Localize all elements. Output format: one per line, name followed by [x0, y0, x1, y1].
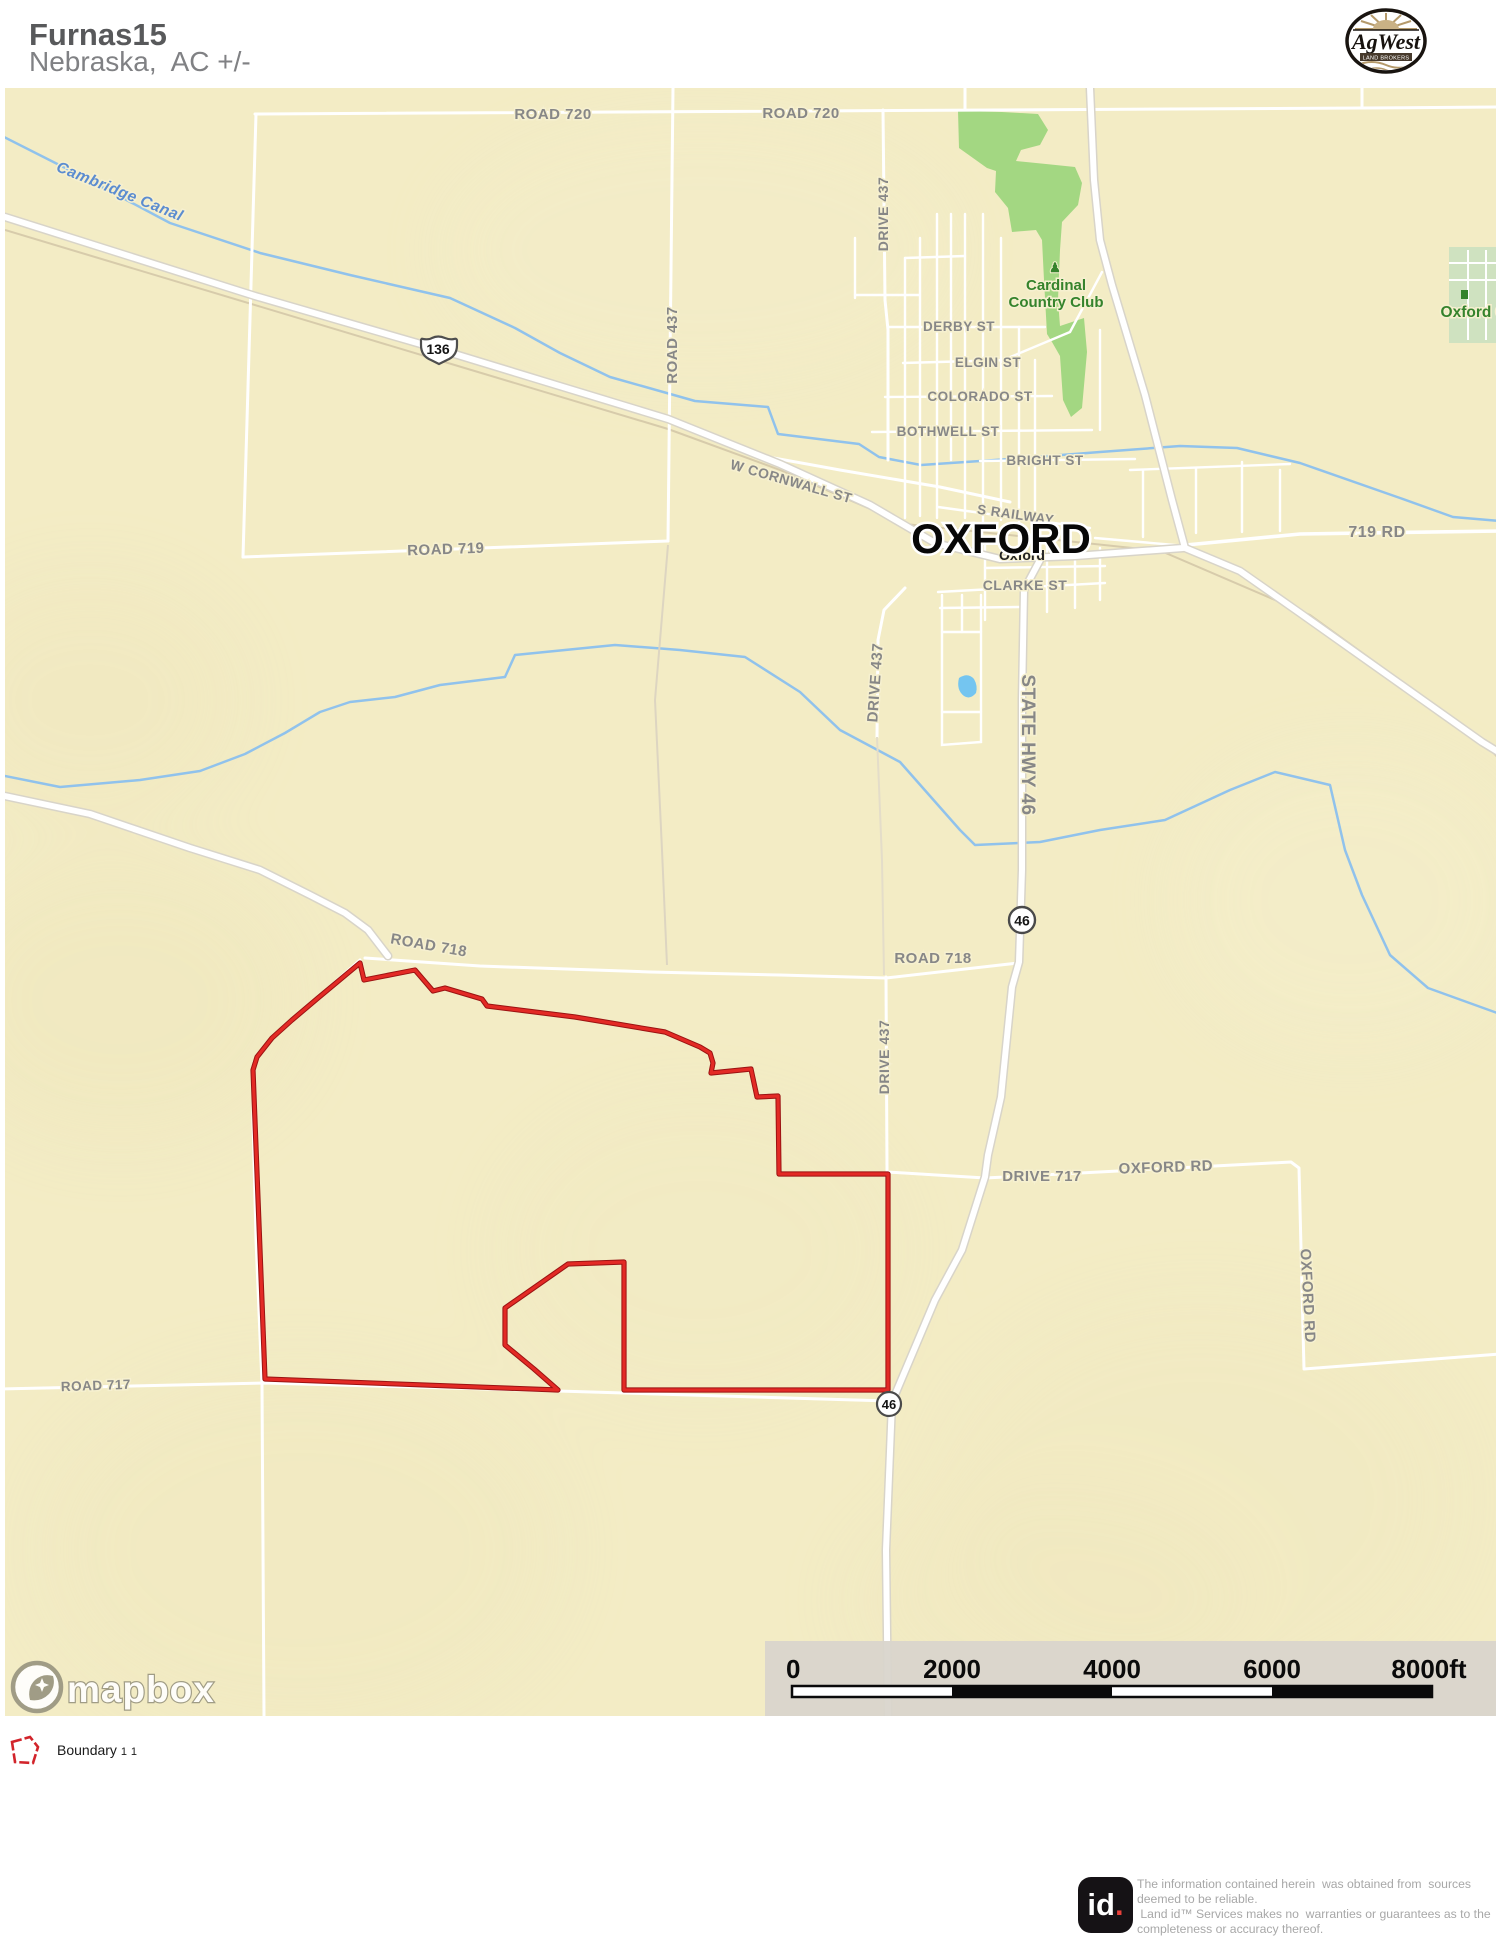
svg-text:DERBY ST: DERBY ST: [923, 319, 995, 334]
svg-text:0: 0: [786, 1654, 800, 1684]
svg-text:ROAD 719: ROAD 719: [407, 540, 485, 560]
svg-text:719 RD: 719 RD: [1348, 524, 1405, 541]
svg-text:OXFORD RD: OXFORD RD: [1118, 1157, 1213, 1177]
svg-text:46: 46: [1014, 913, 1030, 929]
svg-text:Country Club: Country Club: [1009, 294, 1104, 311]
svg-text:BOTHWELL ST: BOTHWELL ST: [897, 424, 1000, 439]
svg-text:2000: 2000: [923, 1654, 981, 1684]
svg-text:ROAD 718: ROAD 718: [894, 950, 971, 967]
svg-text:STATE HWY 46: STATE HWY 46: [1017, 674, 1038, 815]
svg-text:Cardinal: Cardinal: [1026, 277, 1086, 294]
svg-text:8000ft: 8000ft: [1391, 1654, 1466, 1684]
svg-text:DRIVE 437: DRIVE 437: [876, 1020, 892, 1095]
svg-text:ROAD 717: ROAD 717: [61, 1377, 132, 1394]
svg-text:COLORADO ST: COLORADO ST: [927, 389, 1033, 404]
svg-text:136: 136: [426, 341, 450, 357]
svg-text:DRIVE 717: DRIVE 717: [1002, 1168, 1082, 1185]
svg-text:ROAD 720: ROAD 720: [514, 106, 591, 123]
svg-text:ROAD 720: ROAD 720: [762, 105, 839, 122]
svg-text:OXFORD: OXFORD: [911, 515, 1091, 562]
svg-text:Oxford Ce: Oxford Ce: [1441, 304, 1500, 321]
svg-text:ELGIN ST: ELGIN ST: [955, 355, 1022, 370]
svg-text:BRIGHT ST: BRIGHT ST: [1006, 453, 1084, 468]
svg-text:4000: 4000: [1083, 1654, 1141, 1684]
svg-text:♟: ♟: [1049, 260, 1061, 275]
svg-text:LAND BROKERS: LAND BROKERS: [1363, 55, 1410, 61]
svg-text:46: 46: [882, 1397, 896, 1412]
svg-text:AgWest: AgWest: [1350, 29, 1421, 54]
svg-text:mapbox: mapbox: [67, 1669, 215, 1710]
svg-text:CLARKE ST: CLARKE ST: [983, 577, 1068, 593]
svg-text:ROAD 437: ROAD 437: [664, 306, 681, 383]
svg-text:DRIVE 437: DRIVE 437: [875, 177, 891, 252]
svg-text:6000: 6000: [1243, 1654, 1301, 1684]
